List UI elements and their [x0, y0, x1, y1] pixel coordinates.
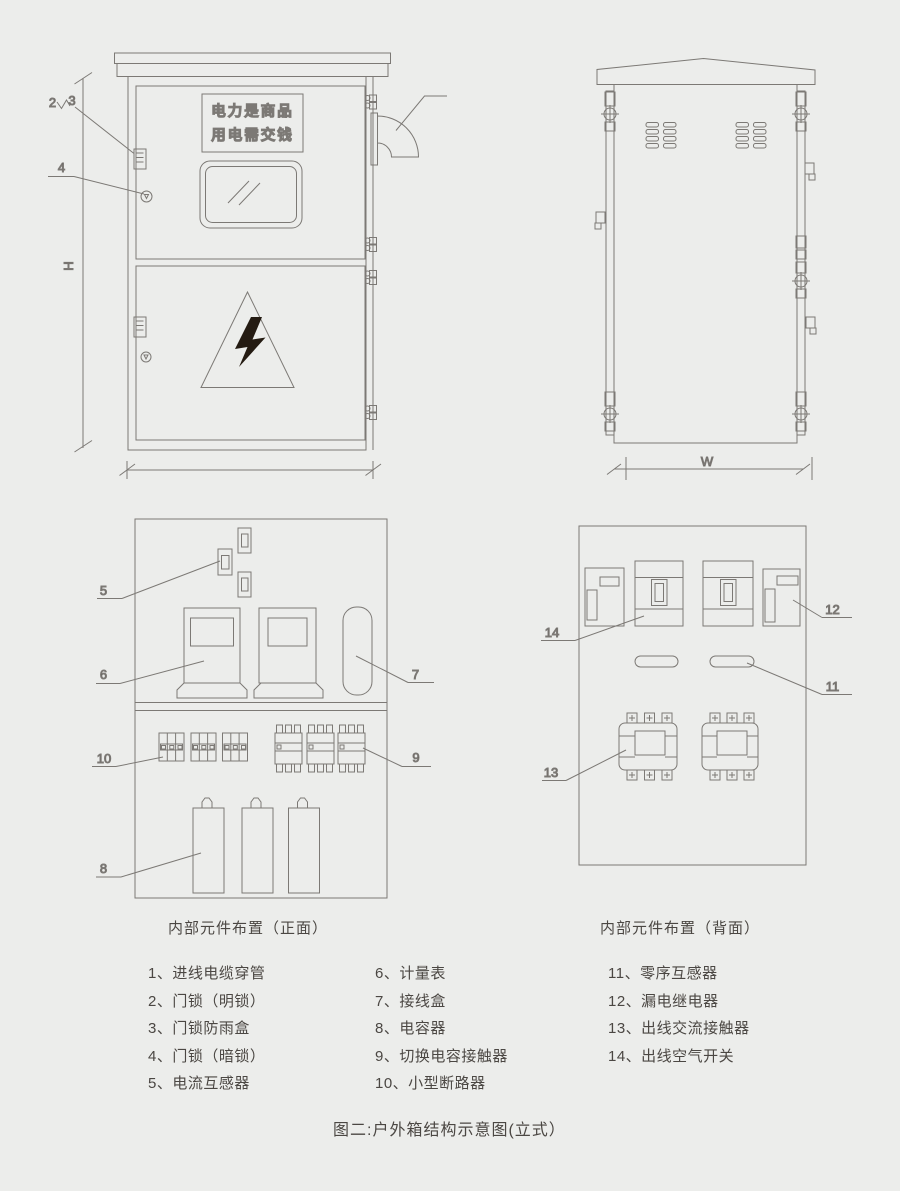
legend-item: 4、门锁（暗锁） [148, 1043, 265, 1071]
height-dim-label: H [61, 261, 76, 270]
callout-11-label: 11 [826, 679, 840, 694]
back-body [614, 85, 797, 444]
back-internal-layout: 14 12 11 13 [541, 526, 852, 865]
page: 电力是商品 用电需交钱 [0, 0, 900, 1191]
legend-column-3: 11、零序互感器 12、漏电继电器 13、出线交流接触器 14、出线空气开关 [608, 960, 750, 1070]
height-dimension: H [61, 73, 92, 453]
front-internal-layout: 5 6 7 8 9 [92, 519, 434, 898]
callout-4: 4 [48, 160, 144, 194]
mini-breakers [159, 733, 248, 761]
junction-box [343, 607, 372, 695]
legend-item: 10、小型断路器 [375, 1070, 508, 1098]
capacitor-contactors [275, 725, 365, 772]
meter-window [200, 161, 302, 228]
ac-contactors [619, 713, 758, 780]
legend-item: 9、切换电容接触器 [375, 1043, 508, 1071]
callout-12: 12 [793, 600, 852, 618]
back-layout-caption: 内部元件布置（背面） [600, 917, 760, 938]
air-breaker-b [703, 561, 753, 626]
sign-text-line2: 用电需交钱 [211, 126, 294, 144]
callout-6-label: 6 [100, 667, 107, 682]
energy-meters [177, 608, 323, 698]
sign-text-line1: 电力是商品 [211, 102, 294, 120]
legend-item: 8、电容器 [375, 1015, 508, 1043]
vent-louvers [646, 123, 766, 149]
callout-7: 7 [356, 656, 434, 683]
callout-6: 6 [96, 661, 204, 684]
callout-10: 10 [92, 751, 163, 767]
front-view: 电力是商品 用电需交钱 [48, 53, 447, 479]
legend-item: 12、漏电继电器 [608, 988, 750, 1016]
callout-14-label: 14 [545, 625, 559, 640]
front-layout-caption: 内部元件布置（正面） [168, 917, 328, 938]
front-layout-box [135, 519, 387, 898]
figure-caption: 图二:户外箱结构示意图(立式） [333, 1116, 566, 1140]
legend-item: 2、门锁（明锁） [148, 988, 265, 1016]
lightning-bolt-icon [235, 317, 266, 367]
back-latches [595, 163, 816, 334]
lower-door-lock [134, 317, 151, 362]
callout-13: 13 [542, 750, 626, 781]
callout-5: 5 [97, 561, 220, 599]
width-dimension-back: W [607, 454, 812, 480]
cable-conduit [371, 96, 447, 165]
callout-3-label: 3 [68, 93, 75, 108]
callout-12-label: 12 [825, 602, 839, 617]
callout-7-label: 7 [412, 667, 419, 682]
callout-9: 9 [363, 748, 431, 767]
callout-13-label: 13 [544, 765, 558, 780]
current-transformers [218, 528, 251, 597]
zero-sequence-cts [635, 656, 754, 667]
callout-5-label: 5 [100, 583, 107, 598]
legend-column-1: 1、进线电缆穿管 2、门锁（明锁） 3、门锁防雨盒 4、门锁（暗锁） 5、电流互… [148, 960, 265, 1098]
legend-item: 5、电流互感器 [148, 1070, 265, 1098]
legend-item: 3、门锁防雨盒 [148, 1015, 265, 1043]
callout-8: 8 [96, 853, 201, 877]
width-dimension-front [120, 461, 382, 479]
legend-item: 13、出线交流接触器 [608, 1015, 750, 1043]
legend-item: 11、零序互感器 [608, 960, 750, 988]
legend-item: 7、接线盒 [375, 988, 508, 1016]
legend-column-2: 6、计量表 7、接线盒 8、电容器 9、切换电容接触器 10、小型断路器 [375, 960, 508, 1098]
capacitors [193, 798, 320, 893]
callout-11: 11 [747, 663, 852, 695]
callout-4-label: 4 [58, 160, 65, 175]
legend-item: 14、出线空气开关 [608, 1043, 750, 1071]
legend-item: 6、计量表 [375, 960, 508, 988]
callout-8-label: 8 [100, 861, 107, 876]
warning-triangle [201, 292, 294, 388]
back-hinges [601, 92, 810, 431]
legend-item: 1、进线电缆穿管 [148, 960, 265, 988]
back-roof [597, 59, 815, 85]
leakage-relay-right [763, 569, 800, 626]
callout-9-label: 9 [412, 750, 419, 765]
callout-10-label: 10 [97, 751, 111, 766]
left-hinge-strip [606, 91, 614, 435]
callout-2-label: 2 [49, 95, 56, 110]
callout-2-3: 2 3 [49, 93, 134, 154]
right-hinge-strip [797, 91, 805, 435]
width-dim-label: W [701, 454, 714, 469]
leakage-relay-left [585, 568, 624, 626]
back-view: W [595, 59, 816, 481]
cabinet-roof [115, 53, 391, 77]
